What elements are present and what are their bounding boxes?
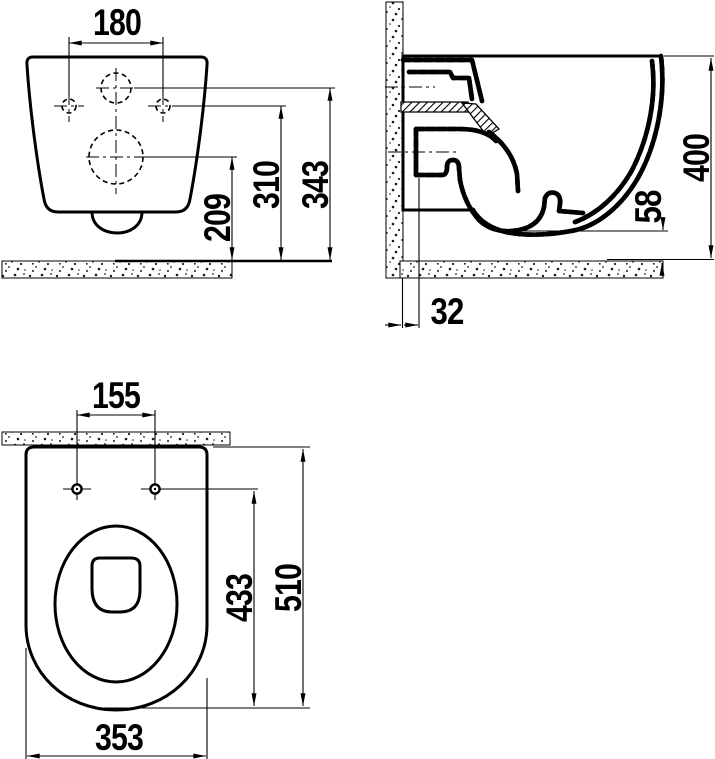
dim-label-side-height: 400 <box>676 134 715 182</box>
seat-hole-right-center <box>154 488 156 490</box>
wall-hatch-band <box>386 2 403 278</box>
dim-label-total-height: 343 <box>295 161 336 209</box>
dim-label-hole-to-front-depth: 433 <box>219 574 260 622</box>
front-view: 180 343 310 209 <box>2 2 336 278</box>
toilet-plan-outline <box>26 447 207 710</box>
dim-label-hole-spacing: 180 <box>93 2 141 43</box>
wall-hatch-band <box>2 432 230 445</box>
floor-hatch-band <box>2 261 232 278</box>
drawing-sheet: 180 343 310 209 <box>0 0 715 759</box>
dim-label-outlet-height: 209 <box>197 194 238 242</box>
dim-label-wall-offset: 32 <box>431 291 464 332</box>
toilet-technical-drawing: 180 343 310 209 <box>0 0 715 759</box>
dim-label-hole-height: 310 <box>246 161 287 209</box>
outlet-bulge <box>92 212 142 233</box>
dim-label-width: 353 <box>95 717 143 758</box>
section-body-fill <box>403 56 662 235</box>
dim-label-trap-clearance: 58 <box>628 190 669 223</box>
side-section-view: 400 58 32 <box>385 2 715 332</box>
plan-view: 155 510 433 353 <box>2 375 310 759</box>
toilet-body-outline <box>27 57 207 212</box>
floor-hatch-band <box>400 261 663 278</box>
section-hatch-bar <box>401 102 472 112</box>
dim-label-total-depth: 510 <box>268 564 309 612</box>
dim-label-seat-hole-spacing: 155 <box>92 375 140 416</box>
seat-hole-left-center <box>76 488 78 490</box>
